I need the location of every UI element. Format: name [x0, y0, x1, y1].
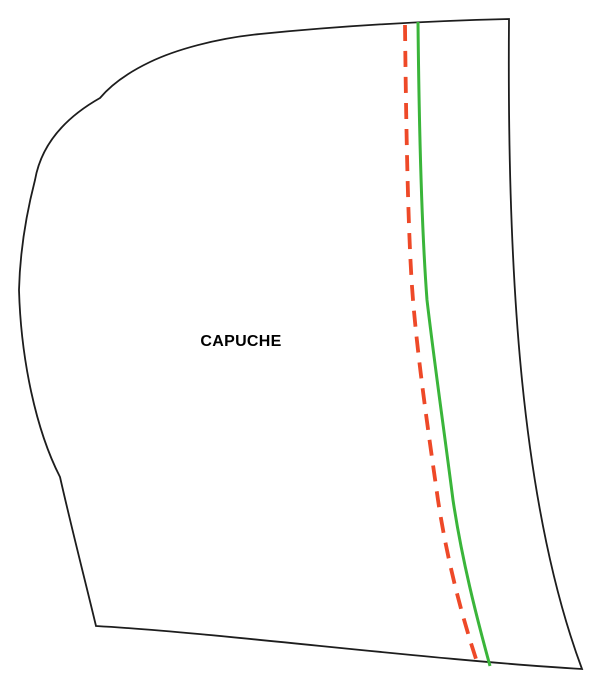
pattern-outline	[19, 19, 582, 669]
piece-label: CAPUCHE	[200, 333, 281, 350]
hood-pattern-diagram: CAPUCHE	[0, 0, 600, 691]
solid-guide-line	[418, 22, 490, 666]
pattern-sheet: CAPUCHE	[0, 0, 600, 691]
